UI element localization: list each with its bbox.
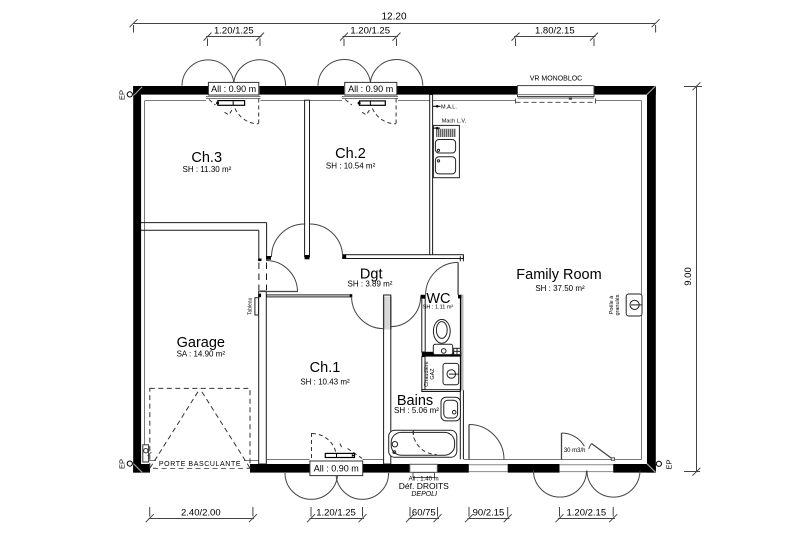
- svg-text:SH : 1.11 m²: SH : 1.11 m²: [423, 305, 454, 311]
- svg-text:SH : 37.50 m²: SH : 37.50 m²: [535, 284, 585, 293]
- svg-text:Déf. DROITS: Déf. DROITS: [399, 481, 449, 491]
- svg-text:Ch.1: Ch.1: [310, 360, 341, 376]
- svg-text:EP: EP: [117, 459, 126, 469]
- svg-text:M.A.L.: M.A.L.: [441, 104, 457, 110]
- svg-text:90/2.15: 90/2.15: [473, 507, 505, 518]
- svg-text:SH : 10.54 m²: SH : 10.54 m²: [326, 161, 376, 170]
- svg-text:SH : 3.89 m²: SH : 3.89 m²: [348, 279, 393, 288]
- svg-text:1.20/1.25: 1.20/1.25: [214, 25, 254, 36]
- svg-text:SH : 5.06 m²: SH : 5.06 m²: [394, 406, 439, 415]
- svg-text:DEPOLI: DEPOLI: [411, 491, 437, 498]
- svg-text:30 m3/h: 30 m3/h: [564, 448, 586, 454]
- svg-text:1.20/1.25: 1.20/1.25: [316, 507, 356, 518]
- svg-text:Ch.2: Ch.2: [335, 146, 366, 162]
- svg-text:SH : 11.30 m²: SH : 11.30 m²: [183, 165, 232, 174]
- svg-text:12.20: 12.20: [381, 11, 406, 22]
- svg-text:EP: EP: [117, 90, 126, 100]
- svg-text:SH : 10.43 m²: SH : 10.43 m²: [300, 378, 350, 387]
- svg-text:9.00: 9.00: [683, 267, 694, 286]
- svg-text:VR MONOBLOC: VR MONOBLOC: [530, 76, 583, 83]
- svg-text:SA : 14.90 m²: SA : 14.90 m²: [177, 349, 226, 358]
- svg-text:1.80/2.15: 1.80/2.15: [535, 25, 575, 36]
- svg-text:Mach L.V.: Mach L.V.: [442, 119, 467, 125]
- svg-text:PORTE BASCULANTE: PORTE BASCULANTE: [159, 461, 241, 468]
- svg-text:Family Room: Family Room: [516, 267, 601, 283]
- svg-text:Tableau: Tableau: [248, 297, 254, 315]
- svg-text:Ch.3: Ch.3: [191, 150, 222, 166]
- svg-text:EP: EP: [665, 459, 674, 469]
- svg-text:1.20/1.25: 1.20/1.25: [350, 25, 390, 36]
- svg-text:All : 0.90 m: All : 0.90 m: [348, 84, 393, 94]
- svg-text:60/75: 60/75: [412, 507, 436, 518]
- svg-text:2.40/2.00: 2.40/2.00: [181, 507, 221, 518]
- svg-text:Poêle àgranulés: Poêle àgranulés: [609, 294, 621, 315]
- svg-text:All : 0.90 m: All : 0.90 m: [314, 464, 359, 474]
- svg-text:1.20/2.15: 1.20/2.15: [566, 507, 606, 518]
- svg-text:All : 0.90 m: All : 0.90 m: [211, 84, 256, 94]
